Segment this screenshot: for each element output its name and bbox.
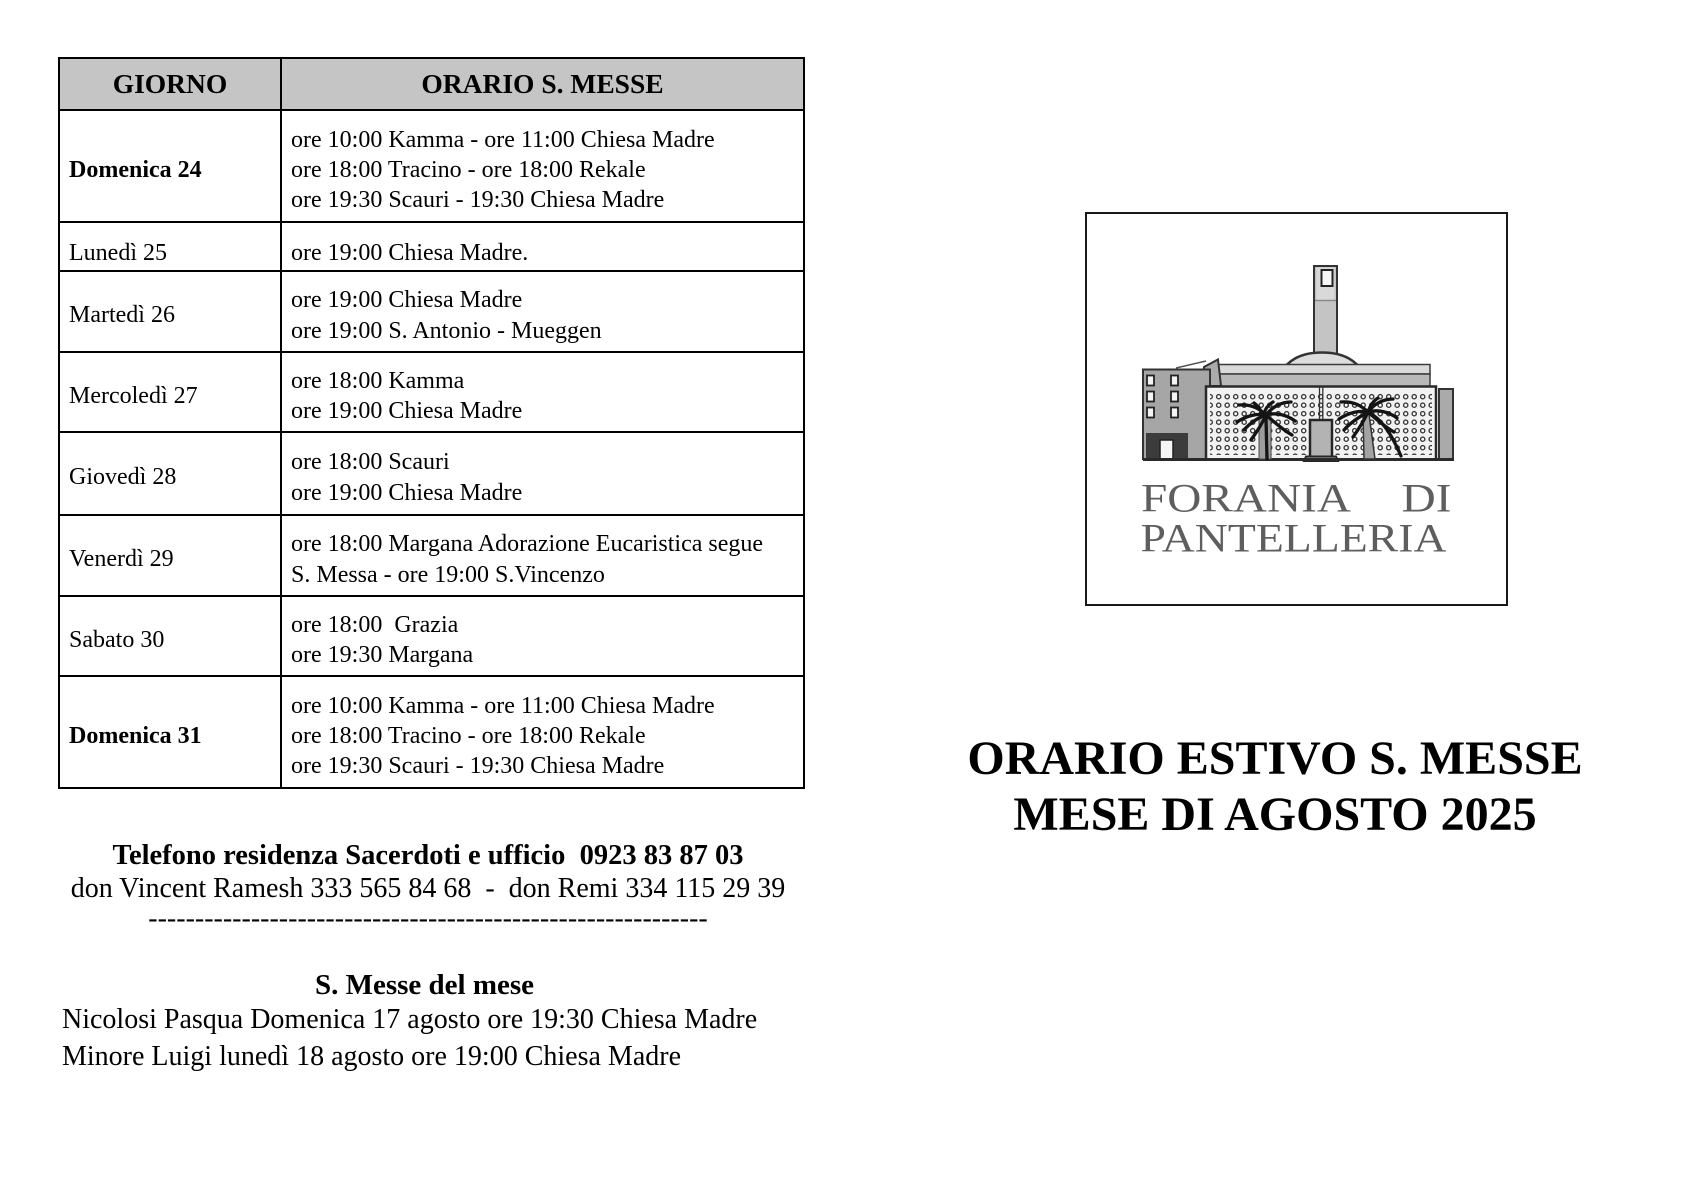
svg-text:FORANIA: FORANIA [1141, 476, 1351, 521]
svg-text:PANTELLERIA: PANTELLERIA [1141, 516, 1447, 561]
svg-text:DI: DI [1402, 476, 1452, 521]
